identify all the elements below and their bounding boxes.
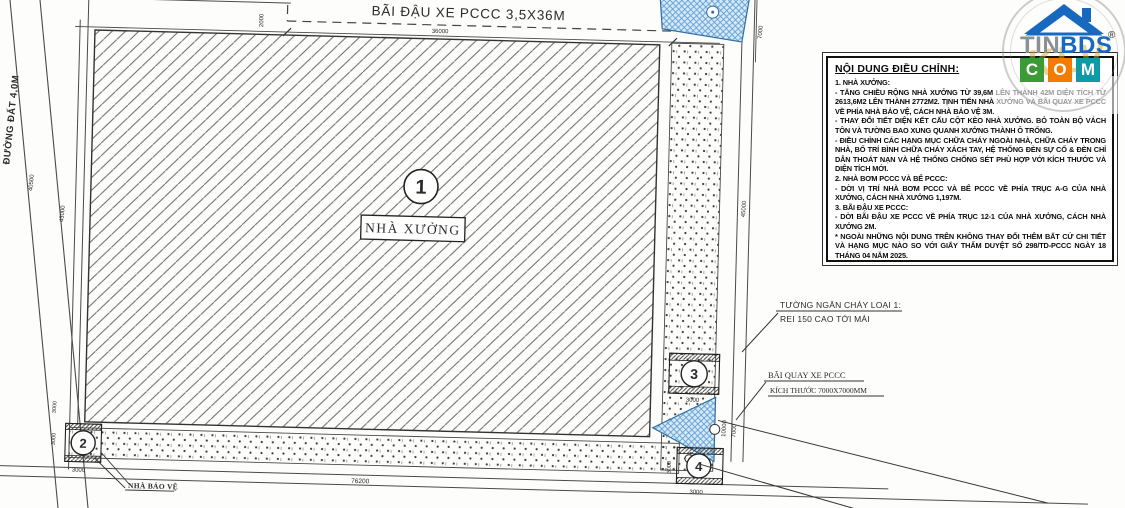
- marker-guard: 2: [79, 436, 87, 451]
- house-icon: [1020, 0, 1116, 36]
- leader-lines-bottom-right: [698, 420, 1050, 508]
- logo-wordmark: TINBDS: [1020, 32, 1112, 60]
- turnaround-label-line1: BÃI QUAY XE PCCC: [768, 370, 846, 380]
- dim-guard-b: 3000: [51, 433, 58, 446]
- factory-hall: 1 NHÀ XƯỞNG: [85, 30, 660, 437]
- dim-guard-c: 3000: [72, 468, 86, 474]
- dim-site-width: 76200: [351, 478, 370, 485]
- logo-bds: BDS: [1060, 32, 1112, 59]
- note-line: 2. NHÀ BƠM PCCC VÀ BỂ PCCC:: [835, 174, 1106, 184]
- logo-letter-m: M: [1076, 58, 1100, 82]
- firewall-label-line1: TƯỜNG NGĂN CHÁY LOẠI 1:: [780, 300, 901, 310]
- dim-left-b: 43000: [59, 205, 67, 223]
- dim-pump: 3000: [686, 398, 700, 404]
- note-line: - DỜI VỊ TRÍ NHÀ BƠM PCCC VÀ BỂ PCCC VỀ …: [835, 184, 1106, 203]
- marker-pump: 3: [690, 366, 698, 382]
- note-line: 3. BÃI ĐẬU XE PCCC:: [835, 203, 1106, 213]
- logo-letter-o: O: [1048, 58, 1072, 82]
- dim-utility: 3000: [689, 490, 703, 496]
- logo-tin: TIN: [1020, 32, 1060, 59]
- marker-tank: 4: [695, 459, 703, 474]
- marker-factory: 1: [415, 176, 427, 198]
- parking-label: BÃI ĐẬU XE PCCC 3,5X36M: [371, 3, 565, 23]
- logo-letter-c: C: [1020, 58, 1044, 82]
- dim-parking-gap: 2000: [259, 13, 265, 27]
- guard-house-label: NHÀ BẢO VỆ: [128, 480, 178, 491]
- road-label: ĐƯỜNG ĐẤT 4,0M: [0, 74, 21, 165]
- registered-mark: ®: [1108, 30, 1115, 41]
- dim-left-a: 40500: [28, 174, 36, 192]
- dim-right-a: 45000: [741, 200, 748, 218]
- logo-com-row: C O M: [1020, 58, 1100, 82]
- note-line: - DỜI BÃI ĐẬU XE PCCC VỀ PHÍA TRỤC 12-1 …: [835, 212, 1106, 231]
- dim-utility-side: 3000: [667, 461, 673, 473]
- tinbds-logo: TINBDS ® C O M: [1012, 0, 1124, 110]
- note-line: * NGOÀI NHỮNG NỘI DUNG TRÊN KHÔNG THAY Đ…: [835, 232, 1106, 261]
- turnaround-callout: BÃI QUAY XE PCCC KÍCH THƯỚC 7000X7000MM: [736, 370, 884, 420]
- factory-label: NHÀ XƯỞNG: [365, 220, 461, 237]
- note-line: - ĐIỀU CHỈNH CÁC HẠNG MỤC CHỮA CHÁY NGOÀ…: [835, 136, 1106, 174]
- turnaround-label-line2: KÍCH THƯỚC 7000X7000MM: [770, 385, 867, 395]
- dim-parking-length: 36000: [432, 29, 449, 35]
- firewall-callout: TƯỜNG NGĂN CHÁY LOẠI 1: REI 150 CAO TỚI …: [742, 300, 902, 352]
- firewall-label-line2: REI 150 CAO TỚI MÁI: [780, 314, 870, 324]
- site-plan-page: ĐƯỜNG ĐẤT 4,0M 40500 43000 BÃI ĐẬU XE PC…: [0, 0, 1125, 508]
- dim-tank-width: 7000: [758, 25, 765, 40]
- note-line: - THAY ĐỔI TIẾT DIỆN KẾT CẤU CỘT KÈO NHÀ…: [835, 116, 1106, 135]
- dim-guard-a: 3000: [52, 401, 59, 414]
